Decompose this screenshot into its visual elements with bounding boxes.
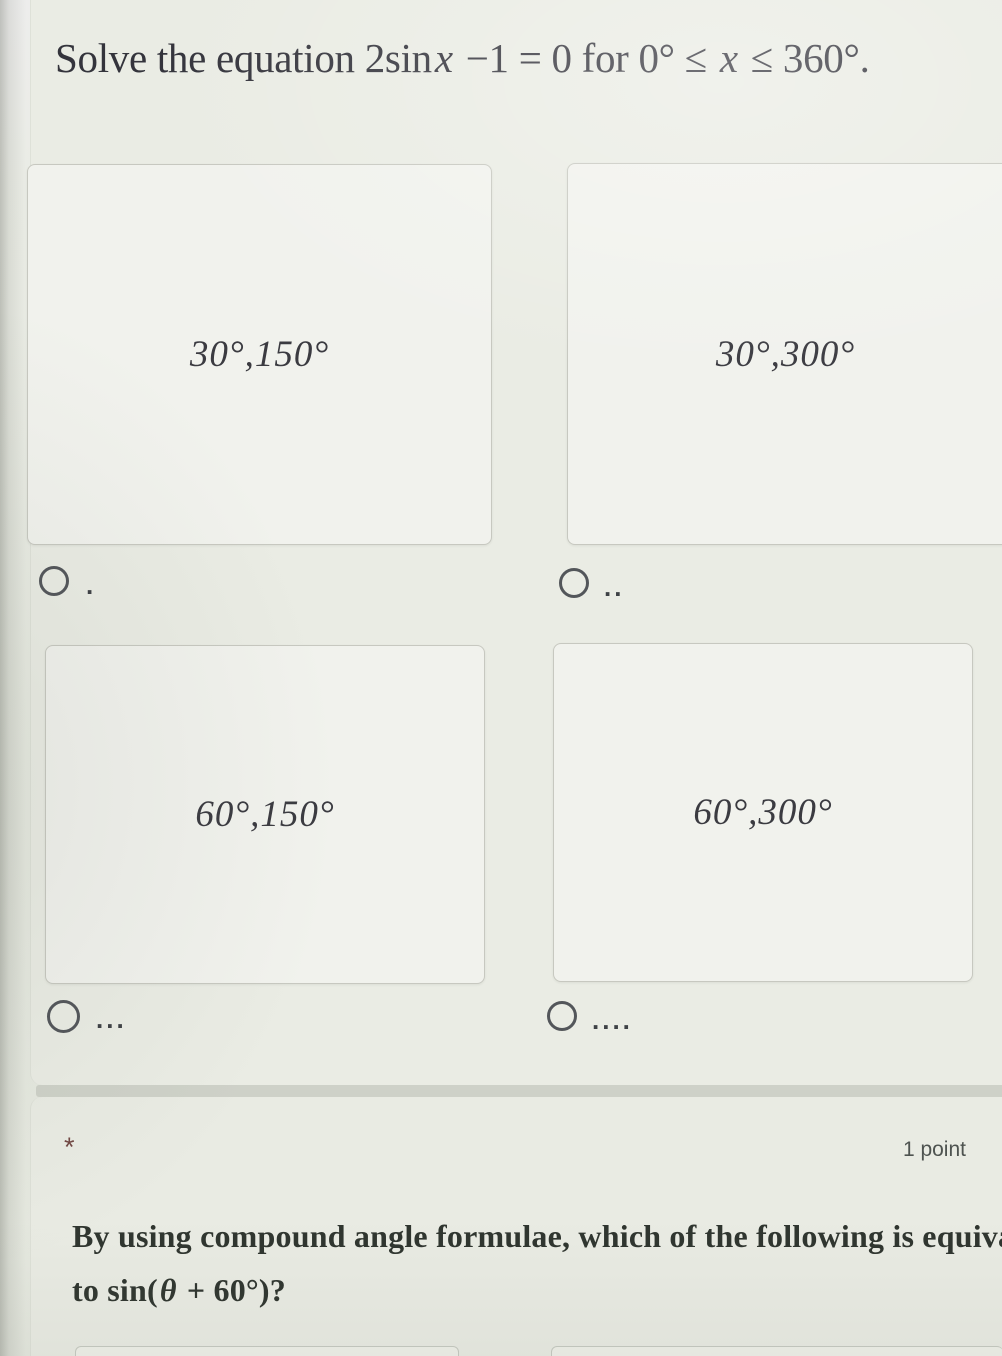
question1-title: Solve the equation 2sinx −1 = 0 for 0° ≤… xyxy=(55,34,985,82)
option-value-4: 60°,300° xyxy=(693,791,832,834)
option-value-2: 30°,300° xyxy=(716,333,855,376)
question2-text-line2: to sin(θ + 60°)? xyxy=(72,1272,286,1309)
radio-option-1-label[interactable]: . xyxy=(86,570,96,600)
quiz-form-screenshot: Solve the equation 2sinx −1 = 0 for 0° ≤… xyxy=(0,0,1002,1356)
option-value-1: 30°,150° xyxy=(190,333,329,376)
title-math-var: x xyxy=(435,35,453,81)
radio-option-2[interactable] xyxy=(559,568,589,598)
required-asterisk: * xyxy=(64,1132,75,1163)
radio-option-2-label[interactable]: .. xyxy=(604,572,624,602)
option-image-card-1[interactable]: 30°,150° xyxy=(27,164,492,545)
question2-math-text: + 60°)? xyxy=(179,1272,286,1308)
question2-math-theta: θ xyxy=(160,1272,177,1308)
title-text: ≤ 360°. xyxy=(741,35,870,81)
option-value-3: 60°,150° xyxy=(195,793,334,836)
card-divider xyxy=(36,1085,1002,1097)
option-image-card-2[interactable]: 30°,300° xyxy=(567,163,1002,545)
question2-text-line1: By using compound angle formulae, which … xyxy=(72,1218,1002,1255)
radio-option-4-label[interactable]: .... xyxy=(592,1005,633,1035)
title-text: Solve the equation 2sin xyxy=(55,35,432,81)
next-option-card-partial-1 xyxy=(75,1346,459,1356)
radio-option-4[interactable] xyxy=(547,1001,577,1031)
radio-option-3-label[interactable]: ... xyxy=(96,1004,127,1034)
title-text: −1 = 0 for 0° ≤ xyxy=(456,35,717,81)
question2-math-text: to sin( xyxy=(72,1272,158,1308)
points-badge: 1 point xyxy=(903,1138,966,1162)
option-image-card-3[interactable]: 60°,150° xyxy=(45,645,485,984)
title-math-var: x xyxy=(720,35,738,81)
radio-option-3[interactable] xyxy=(47,1000,80,1033)
radio-option-1[interactable] xyxy=(39,566,69,596)
next-option-card-partial-2 xyxy=(551,1346,1002,1356)
option-image-card-4[interactable]: 60°,300° xyxy=(553,643,973,982)
